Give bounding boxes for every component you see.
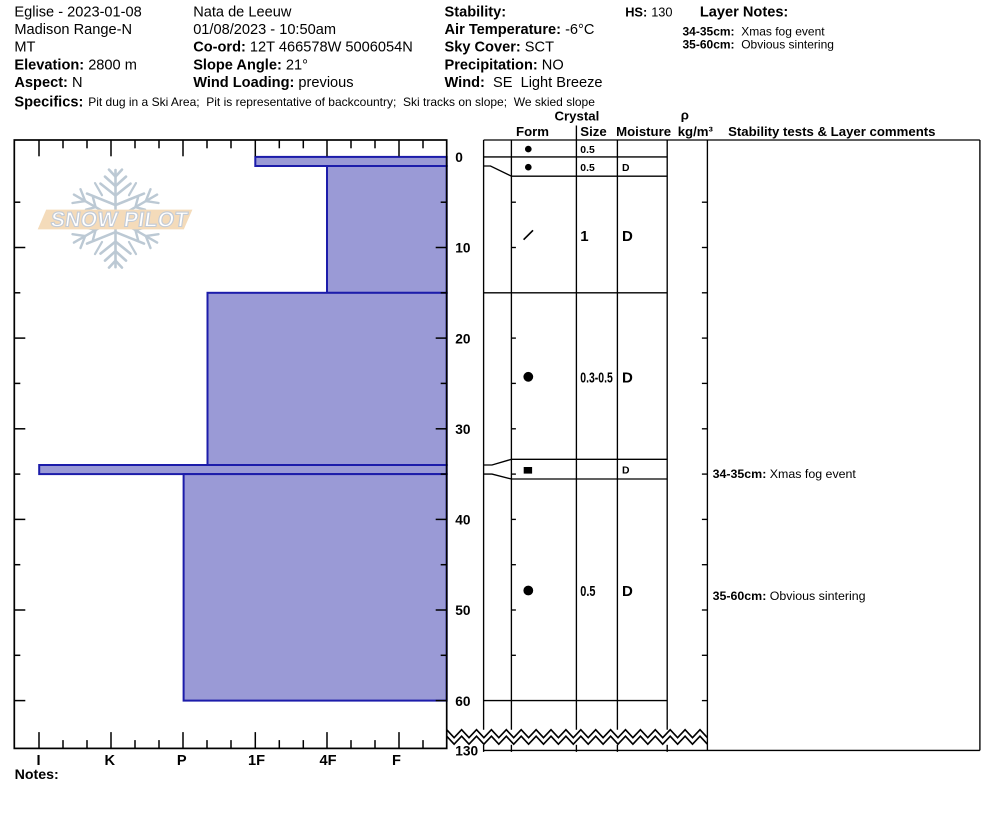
- svg-text:Elevation: 2800 m: Elevation: 2800 m: [14, 57, 136, 73]
- svg-text:4F: 4F: [319, 753, 336, 769]
- svg-text:D: D: [622, 228, 633, 245]
- svg-text:Form: Form: [516, 124, 549, 139]
- svg-text:Notes:: Notes:: [15, 767, 59, 783]
- svg-text:Wind: SE Light Breeze: Wind: SE Light Breeze: [445, 75, 603, 91]
- svg-text:D: D: [622, 466, 630, 477]
- svg-text:F: F: [392, 753, 401, 769]
- svg-text:Co-ord: 12T 466578W 5006054N: Co-ord: 12T 466578W 5006054N: [193, 40, 413, 56]
- svg-text:1F: 1F: [248, 753, 265, 769]
- svg-text:Size: Size: [580, 124, 606, 139]
- svg-text:Wind Loading: previous: Wind Loading: previous: [193, 75, 353, 91]
- svg-text:0.3-0.5: 0.3-0.5: [580, 370, 613, 387]
- svg-text:0.5: 0.5: [580, 583, 595, 600]
- svg-text:20: 20: [455, 331, 471, 346]
- svg-text:D: D: [622, 370, 633, 387]
- svg-text:SNOW PILOT: SNOW PILOT: [49, 208, 189, 231]
- svg-text:Aspect: N: Aspect: N: [14, 75, 82, 91]
- svg-text:Layer Notes:: Layer Notes:: [700, 4, 788, 20]
- svg-text:35-60cm: Obvious sintering: 35-60cm: Obvious sintering: [713, 589, 866, 603]
- svg-text:34-35cm: Xmas fog event: 34-35cm: Xmas fog event: [713, 467, 857, 481]
- svg-text:Crystal: Crystal: [555, 109, 600, 124]
- svg-text:50: 50: [455, 603, 471, 618]
- svg-text:MT: MT: [14, 40, 35, 56]
- svg-text:130: 130: [651, 4, 672, 19]
- svg-text:Moisture: Moisture: [616, 124, 671, 139]
- svg-text:Air Temperature: -6°C: Air Temperature: -6°C: [445, 22, 595, 38]
- svg-text:Stability:: Stability:: [445, 4, 507, 20]
- svg-text:P: P: [177, 753, 187, 769]
- svg-text:Precipitation: NO: Precipitation: NO: [445, 57, 564, 73]
- svg-text:Sky Cover: SCT: Sky Cover: SCT: [445, 40, 555, 56]
- svg-text:D: D: [622, 163, 630, 174]
- svg-text:Pit dug in a Ski Area; Pit is: Pit dug in a Ski Area; Pit is representa…: [88, 95, 595, 109]
- svg-text:60: 60: [455, 694, 471, 709]
- svg-text:30: 30: [455, 422, 471, 437]
- svg-text:Eglise - 2023-01-08: Eglise - 2023-01-08: [14, 4, 141, 20]
- svg-text:Specifics:: Specifics:: [14, 94, 83, 110]
- svg-text:Slope Angle: 21°: Slope Angle: 21°: [193, 57, 308, 73]
- svg-text:0: 0: [455, 150, 463, 165]
- svg-text:Nata de Leeuw: Nata de Leeuw: [193, 4, 292, 20]
- svg-text:01/08/2023 - 10:50am: 01/08/2023 - 10:50am: [193, 22, 336, 38]
- svg-text:0.5: 0.5: [580, 163, 595, 174]
- svg-text:D: D: [622, 583, 633, 600]
- svg-text:35-60cm: Obvious sintering: 35-60cm: Obvious sintering: [683, 37, 834, 51]
- svg-text:10: 10: [455, 241, 471, 256]
- svg-text:HS:: HS:: [625, 4, 647, 19]
- svg-text:Madison Range-N: Madison Range-N: [14, 22, 132, 38]
- svg-text:0.5: 0.5: [580, 145, 595, 156]
- svg-text:130: 130: [455, 743, 478, 758]
- svg-text:Stability tests & Layer commen: Stability tests & Layer comments: [728, 124, 935, 139]
- svg-text:K: K: [105, 753, 116, 769]
- svg-text:kg/m³: kg/m³: [678, 124, 714, 139]
- svg-text:1: 1: [580, 228, 588, 245]
- svg-text:40: 40: [455, 513, 471, 528]
- svg-text:ρ: ρ: [681, 107, 689, 122]
